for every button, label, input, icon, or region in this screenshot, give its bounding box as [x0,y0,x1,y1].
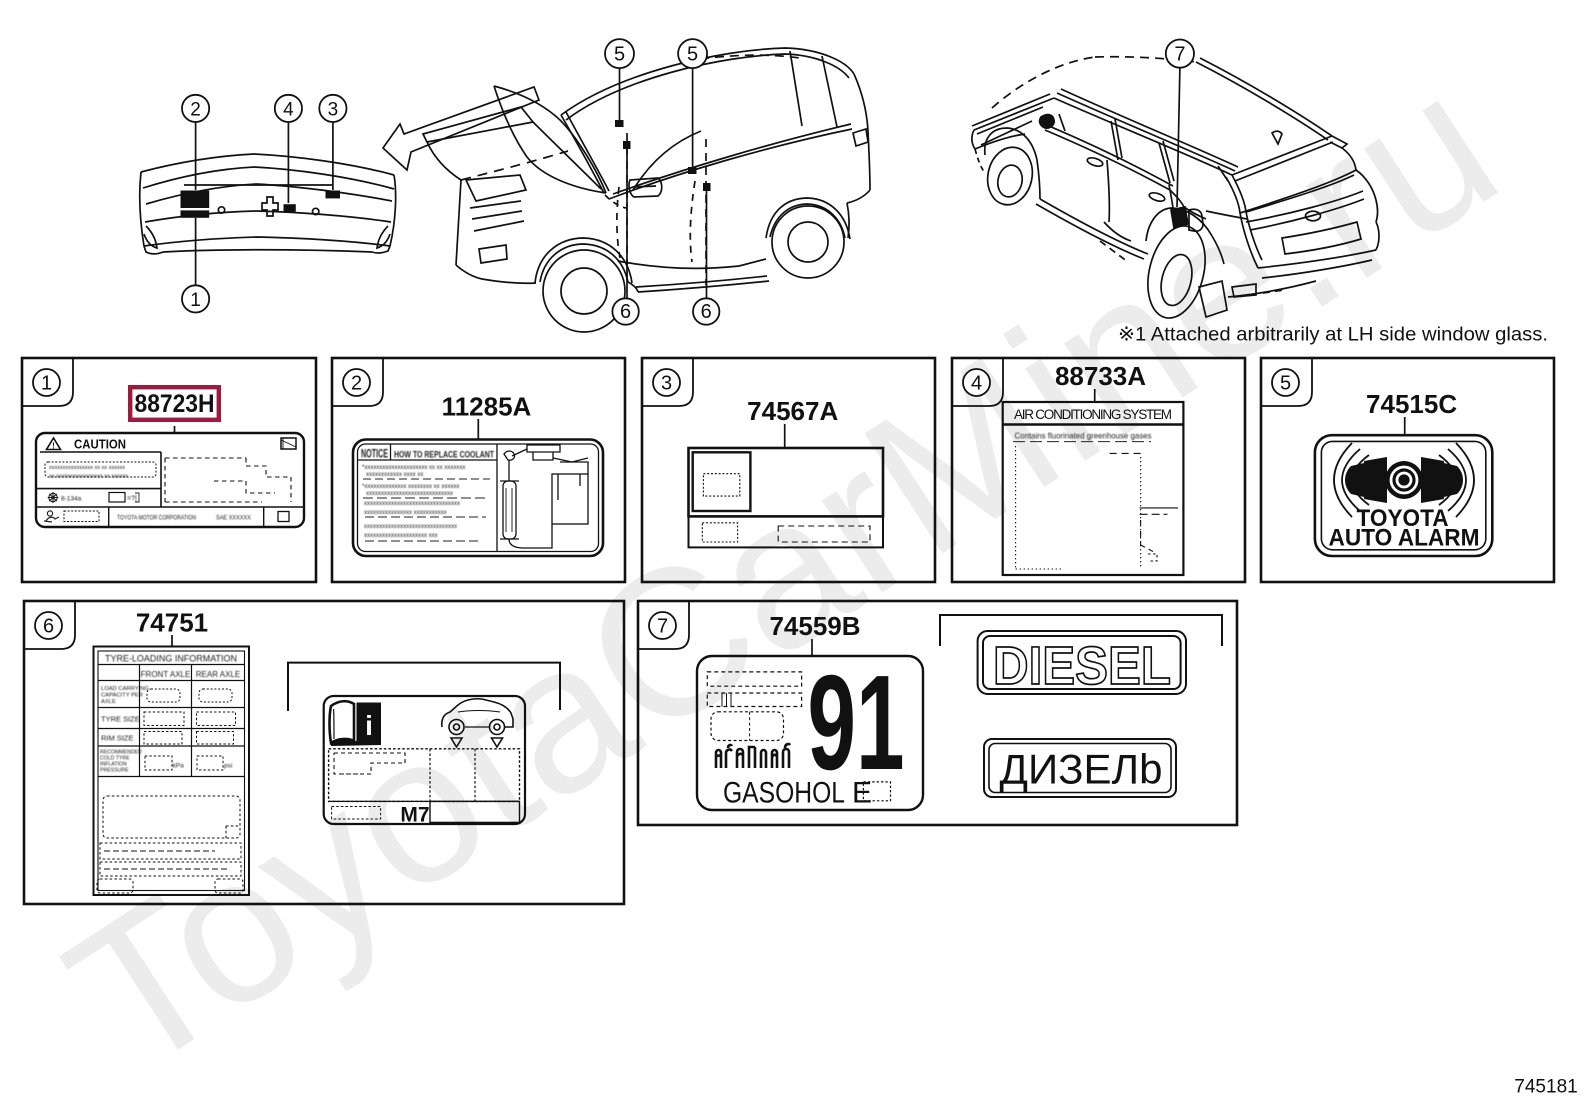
svg-text:i: i [365,710,373,741]
svg-text:CAUTION: CAUTION [74,437,126,452]
svg-text:88723H: 88723H [135,390,215,418]
svg-text:74751: 74751 [136,608,208,638]
svg-text:2: 2 [190,99,201,120]
svg-text:TYRE-LOADING INFORMATION: TYRE-LOADING INFORMATION [105,654,237,664]
svg-text:8-134a: 8-134a [61,496,82,503]
svg-text:RIM SIZE: RIM SIZE [101,734,134,743]
svg-text:psi: psi [224,763,232,770]
svg-text:6: 6 [620,301,631,323]
svg-text:kPa: kPa [173,763,185,770]
svg-text:ДИЗЕЛb: ДИЗЕЛb [1000,746,1163,793]
svg-text:TYRE SIZE: TYRE SIZE [101,715,140,724]
svg-text:SAE XXXXXX: SAE XXXXXX [216,515,251,522]
svg-text:2: 2 [351,373,362,395]
svg-text:=?|: =?| [127,496,137,503]
svg-text:ToyotaCarMine.ru: ToyotaCarMine.ru [31,28,1534,1099]
svg-text:xxxxxxxxxxxxxxxx xxxxxxxxxxx: xxxxxxxxxxxxxxxx xxxxxxxxxxx [364,510,447,516]
svg-text:xxxxxxxxxxxxxxxxxxxxxxxxxxxxxx: xxxxxxxxxxxxxxxxxxxxxxxxxxxxxxx [364,524,457,530]
svg-text:Contains fluorinated greenhous: Contains fluorinated greenhouse gases [1015,431,1152,441]
svg-text:745181: 745181 [1514,1077,1577,1098]
svg-text:5: 5 [1280,373,1291,395]
svg-text:xxxxxxxxxxxxxxxxxxxxxxxxxxxxxx: xxxxxxxxxxxxxxxxxxxxxxxxxxxxxxxx [364,501,460,507]
svg-text:3: 3 [661,373,672,395]
svg-text:6: 6 [701,301,712,323]
svg-text:7: 7 [657,616,668,638]
svg-text:!: ! [52,442,55,451]
svg-text:*xxxxxxxxxxxxxx xxxxxxxx xx xx: *xxxxxxxxxxxxxx xxxxxxxx xx xxxxxx [362,484,459,490]
svg-text:5: 5 [687,44,698,66]
svg-text:xxxxxxxxxxxxxxxxxxxxxxxxxxxxx: xxxxxxxxxxxxxxxxxxxxxxxxxxxxx [366,491,453,497]
svg-text:AXLE: AXLE [101,699,116,705]
svg-text:xxxxxxxxxxxxxxxxxxxxx xxx: xxxxxxxxxxxxxxxxxxxxx xxx [364,533,438,539]
svg-text:CAPACITY PER: CAPACITY PER [101,693,143,699]
svg-text:74515C: 74515C [1366,389,1457,419]
svg-text:1: 1 [190,290,201,311]
svg-text:DIESEL: DIESEL [993,636,1171,696]
svg-text:1: 1 [41,373,52,395]
svg-text:xxxxxxxxxxxxxxxx xx xx xxxxxx: xxxxxxxxxxxxxxxx xx xx xxxxxx [49,465,125,471]
svg-text:3: 3 [328,99,339,120]
svg-text:6: 6 [43,616,54,638]
svg-text:xx xxxxxxxxxxxxxxxxx xx xxxxxx: xx xxxxxxxxxxxxxxxxx xx xxxxxx [49,474,128,480]
svg-text:REAR AXLE: REAR AXLE [196,670,240,679]
svg-text:AUTO ALARM: AUTO ALARM [1329,525,1480,552]
svg-text:LOAD CARRYING: LOAD CARRYING [101,686,149,692]
svg-text:5: 5 [614,44,625,66]
svg-text:HOW TO REPLACE COOLANT: HOW TO REPLACE COOLANT [394,450,494,461]
svg-text:PRESSURE: PRESSURE [100,768,129,774]
svg-text:74559B: 74559B [769,611,860,641]
svg-text:4: 4 [283,99,294,120]
svg-text:TOYOTA MOTOR CORPORATION: TOYOTA MOTOR CORPORATION [117,515,196,522]
svg-text:xxxxxxxxxxxx xxxx xx: xxxxxxxxxxxx xxxx xx [366,472,423,478]
svg-text:※1 Attached arbitrarily at LH: ※1 Attached arbitrarily at LH side windo… [1118,325,1548,346]
svg-text:AIR CONDITIONING SYSTEM: AIR CONDITIONING SYSTEM [1014,407,1172,422]
svg-text:FRONT AXLE: FRONT AXLE [141,670,191,679]
svg-text:91: 91 [808,647,905,798]
svg-text:88733A: 88733A [1055,361,1146,391]
svg-text:NOTICE: NOTICE [361,449,388,461]
svg-text:M7: M7 [400,804,429,827]
svg-text:7: 7 [1174,44,1185,66]
svg-text:4: 4 [971,373,982,395]
svg-text:74567A: 74567A [747,396,838,426]
svg-text:11285A: 11285A [442,392,532,422]
svg-text:*xxxxxxxxxxxxxxxxxxxxx xx xx x: *xxxxxxxxxxxxxxxxxxxxx xx xx xxxxxxx [362,465,465,471]
